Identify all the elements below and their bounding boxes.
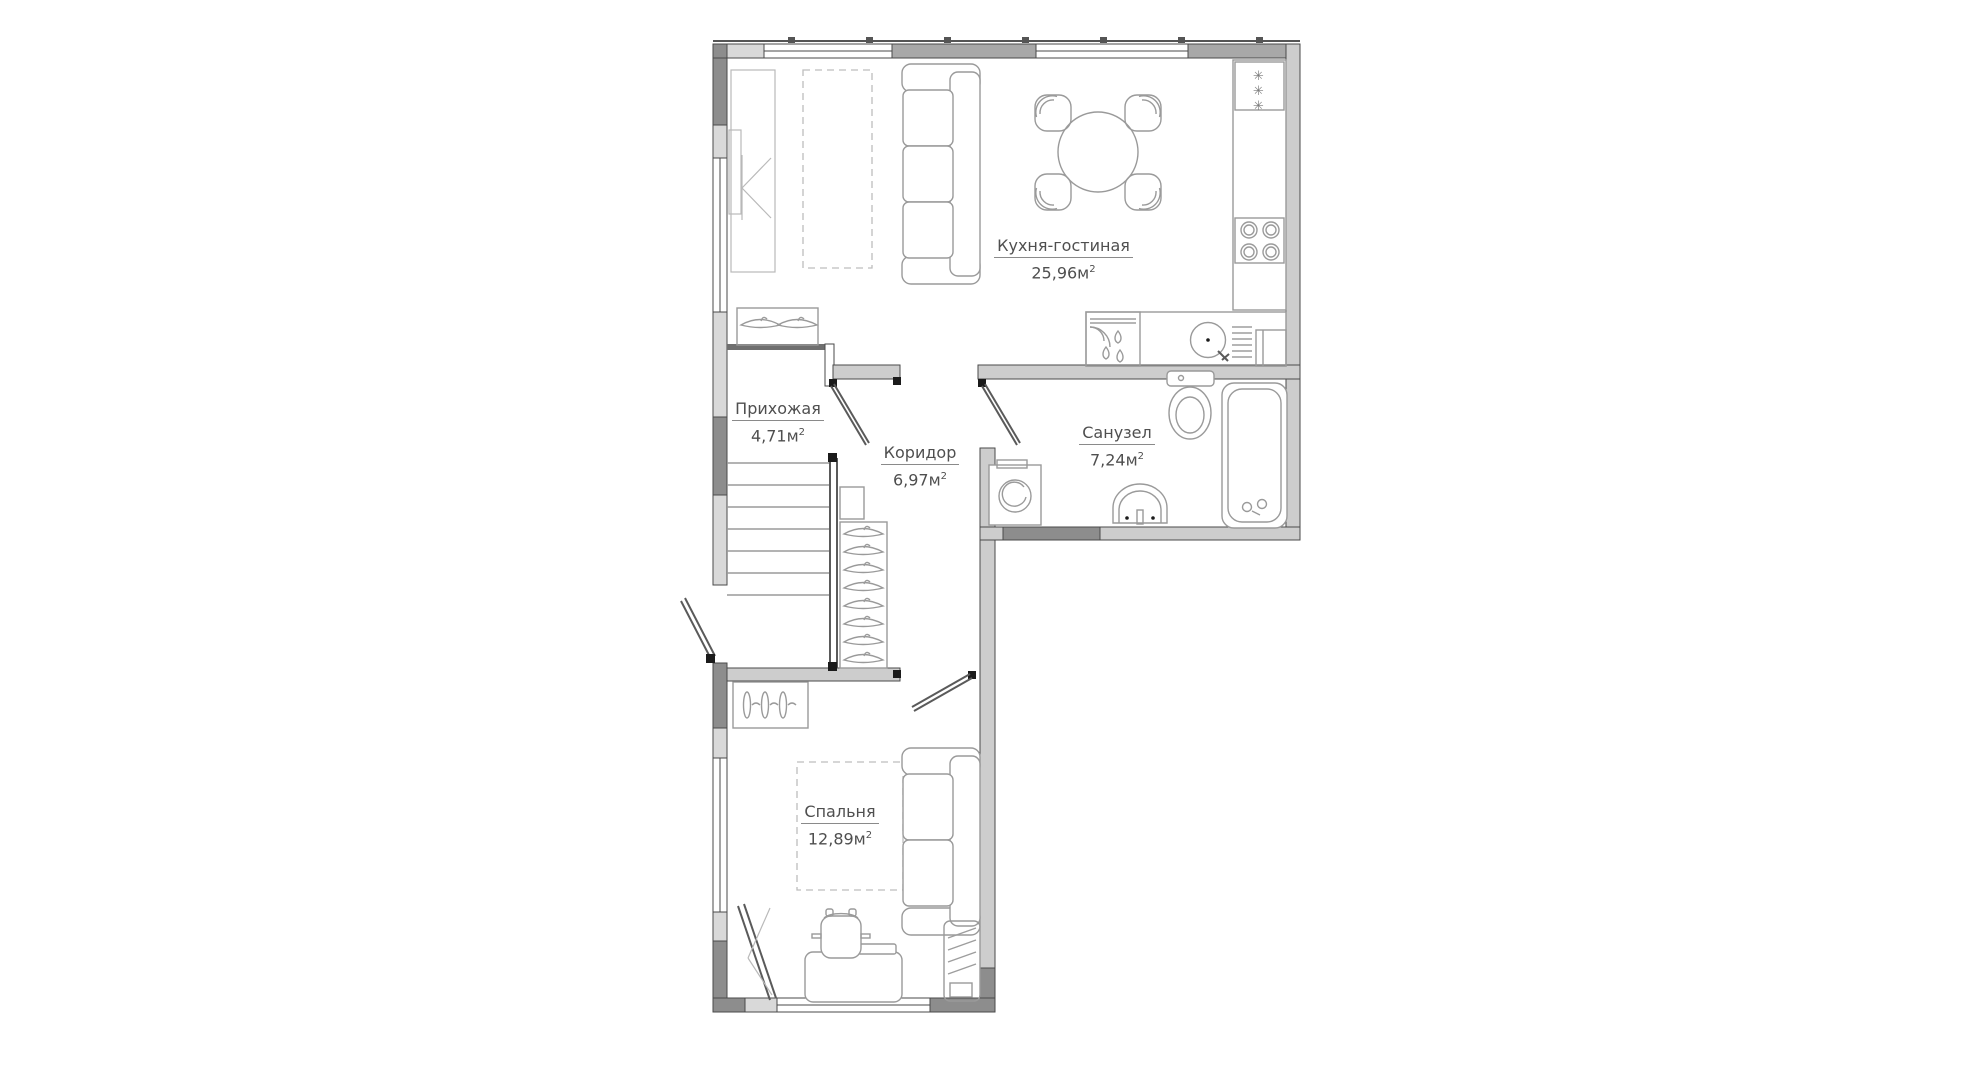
room-area-sup: 2 xyxy=(1089,264,1095,275)
washing-machine xyxy=(989,460,1041,525)
room-name: Коридор xyxy=(881,443,960,465)
bathroom-door xyxy=(982,384,1020,445)
living-sofa xyxy=(902,64,980,284)
stove xyxy=(1235,218,1284,263)
fridge: ✳ ✳ ✳ xyxy=(1235,62,1284,114)
room-area-sup: 2 xyxy=(941,471,947,482)
kitchen-sink-unit xyxy=(1086,312,1140,366)
room-name: Кухня-гостиная xyxy=(994,236,1133,258)
room-area-value: 12,89м xyxy=(808,829,866,848)
room-label-hallway: Прихожая 4,71м2 xyxy=(712,399,844,445)
room-area-sup: 2 xyxy=(1138,451,1144,462)
room-area-value: 7,24м xyxy=(1090,450,1138,469)
hallway-coat-rack xyxy=(737,308,818,345)
room-name: Санузел xyxy=(1079,423,1154,445)
desk-chair xyxy=(812,909,870,958)
stair-railing xyxy=(828,453,837,671)
bathtub xyxy=(1222,383,1287,528)
stair-post xyxy=(840,487,864,519)
exterior-walls xyxy=(713,44,1300,1012)
room-area-value: 25,96м xyxy=(1031,263,1089,282)
living-dashed-area xyxy=(803,70,872,268)
corridor-top-wall-stub xyxy=(833,365,900,379)
room-area-value: 4,71м xyxy=(751,426,799,445)
kitchen-counter-column: ✳ ✳ ✳ xyxy=(1233,60,1286,310)
room-name: Спальня xyxy=(801,802,878,824)
floor-plan-drawing: ✳ ✳ ✳ xyxy=(0,0,1980,1080)
top-dimension-line xyxy=(713,37,1300,43)
dining-chair xyxy=(1035,95,1071,131)
room-label-bathroom: Санузел 7,24м2 xyxy=(1051,423,1183,469)
room-label-bedroom: Спальня 12,89м2 xyxy=(774,802,906,848)
dining-table xyxy=(1035,95,1161,210)
kitchen-round-sink xyxy=(1191,323,1230,362)
kitchen-counter-bottom xyxy=(1086,312,1286,366)
staircase xyxy=(727,453,864,671)
leaning-mirror xyxy=(738,904,776,1000)
bedroom-sofa xyxy=(902,748,980,935)
dish-drainer xyxy=(1232,327,1252,357)
room-area-sup: 2 xyxy=(866,830,872,841)
fridge-star-icon: ✳ xyxy=(1253,84,1264,99)
bathroom-sink xyxy=(1113,484,1167,524)
room-area-sup: 2 xyxy=(799,427,805,438)
bathroom-top-wall xyxy=(978,365,1300,379)
room-label-kitchen-living: Кухня-гостиная 25,96м2 xyxy=(986,236,1141,282)
dining-chair xyxy=(1125,95,1161,131)
corridor-closet-hangers xyxy=(840,522,887,668)
dining-chair xyxy=(1125,174,1161,210)
counter-return xyxy=(1256,330,1286,366)
fridge-star-icon: ✳ xyxy=(1253,69,1264,84)
room-area: 12,89м2 xyxy=(774,826,906,848)
fridge-star-icon: ✳ xyxy=(1253,99,1264,114)
entrance-door xyxy=(681,598,715,663)
dining-chair xyxy=(1035,174,1071,210)
living-wardrobe xyxy=(729,70,775,272)
room-label-corridor: Коридор 6,97м2 xyxy=(854,443,986,489)
floor-plan-canvas: ✳ ✳ ✳ xyxy=(0,0,1980,1080)
bedroom-door xyxy=(912,674,972,711)
room-area: 4,71м2 xyxy=(712,423,844,445)
room-area: 25,96м2 xyxy=(986,260,1141,282)
room-area-value: 6,97м xyxy=(893,470,941,489)
room-name: Прихожая xyxy=(732,399,824,421)
room-area: 6,97м2 xyxy=(854,467,986,489)
room-area: 7,24м2 xyxy=(1051,447,1183,469)
bedroom-top-wall xyxy=(727,668,900,681)
shoe-cabinet xyxy=(733,682,808,728)
